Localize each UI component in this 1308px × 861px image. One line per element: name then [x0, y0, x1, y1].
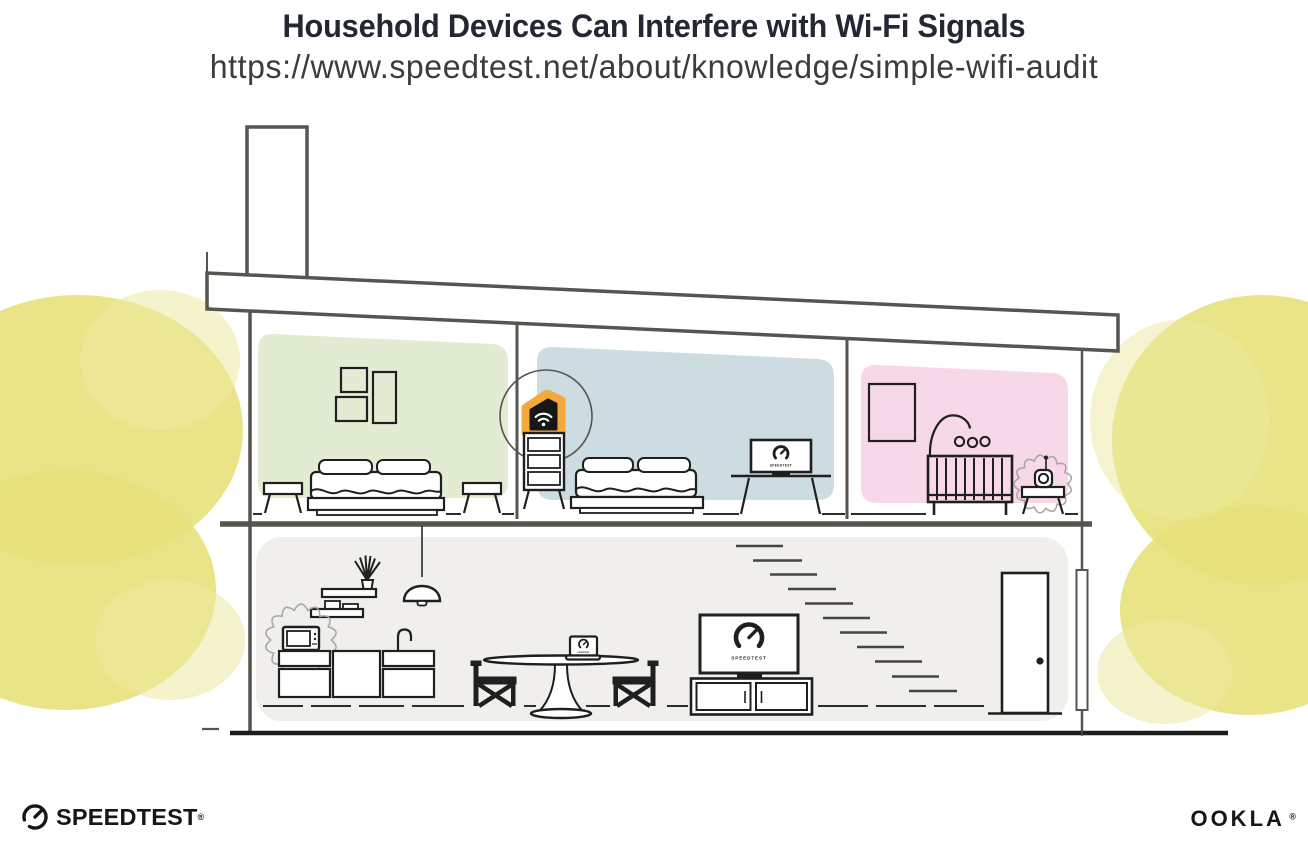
wifi-router: [526, 394, 561, 433]
pillow: [377, 460, 430, 474]
pillow: [583, 458, 633, 472]
microwave-icon: [283, 627, 319, 650]
laptop-icon: SPEEDTEST: [566, 637, 600, 660]
source-url: https://www.speedtest.net/about/knowledg…: [20, 48, 1289, 86]
bedroom-tv-screen-label: SPEEDTEST: [770, 464, 793, 468]
ookla-logo: OOKLA ®: [1190, 806, 1296, 832]
speedtest-gauge-icon: [20, 802, 50, 832]
laptop-screen-label: SPEEDTEST: [578, 652, 591, 654]
tv-stand: [772, 473, 790, 476]
speedtest-logo: SPEEDTEST ®: [20, 802, 204, 832]
jar: [325, 601, 340, 609]
header: Household Devices Can Interfere with Wi-…: [0, 0, 1308, 86]
living-room-tv: SPEEDTEST: [700, 615, 798, 678]
pillow: [319, 460, 372, 474]
ookla-wordmark: OOKLA: [1190, 806, 1284, 831]
foliage-right: [1090, 295, 1308, 724]
bedroom-tv: SPEEDTEST: [751, 440, 811, 476]
ookla-trademark: ®: [1289, 812, 1296, 822]
door-knob: [1036, 657, 1043, 664]
house-illustration: SPEEDTEST: [0, 0, 1308, 861]
speedtest-wordmark: SPEEDTEST: [56, 804, 198, 831]
drain-pipe: [1077, 537, 1088, 736]
page-title: Household Devices Can Interfere with Wi-…: [26, 7, 1282, 45]
tv-console: [691, 679, 812, 715]
bed-platform: [308, 498, 444, 510]
living-tv-screen-label: SPEEDTEST: [731, 656, 766, 661]
foliage-left: [0, 290, 245, 710]
bed-base: [317, 510, 437, 515]
bed-base: [580, 508, 693, 513]
chimney: [247, 127, 307, 278]
plant-pot: [362, 580, 373, 589]
bed-platform: [571, 497, 703, 508]
pillow: [638, 458, 690, 472]
infographic-page: Household Devices Can Interfere with Wi-…: [0, 0, 1308, 861]
